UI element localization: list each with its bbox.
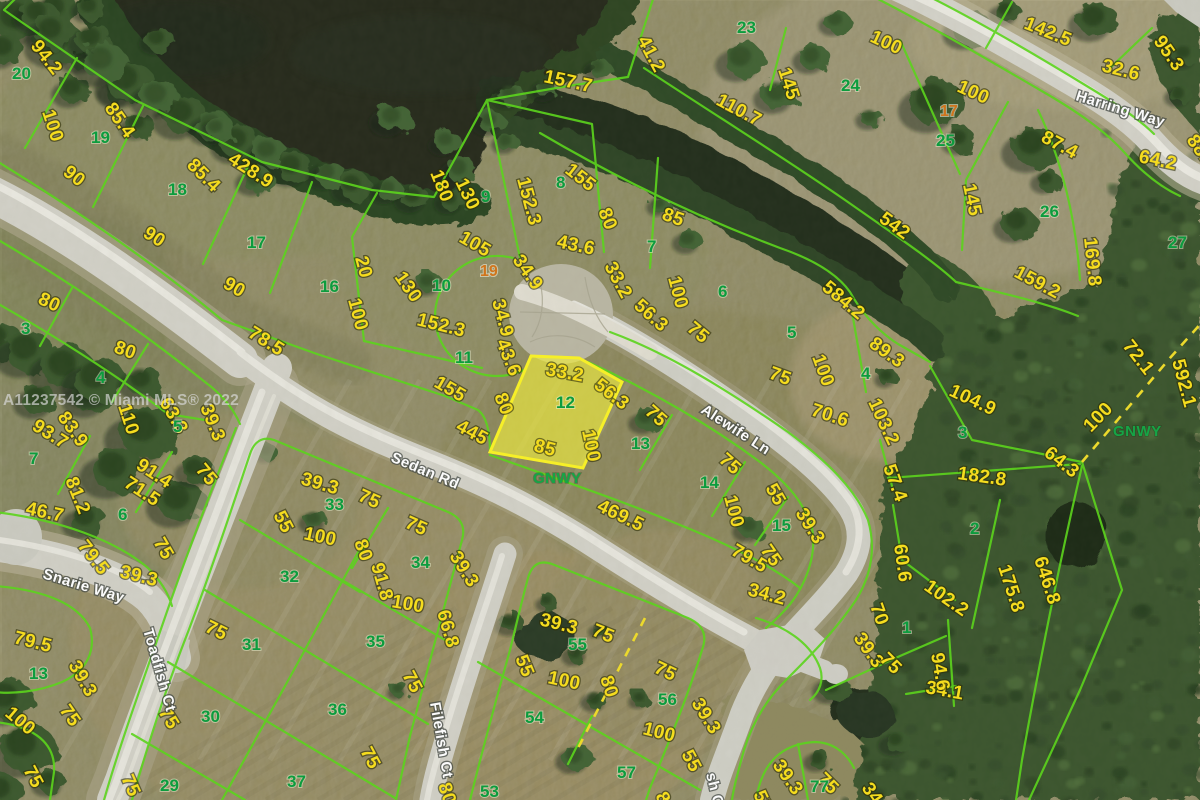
svg-text:34: 34 bbox=[411, 553, 430, 572]
svg-text:GNWY: GNWY bbox=[533, 470, 582, 487]
svg-text:11: 11 bbox=[455, 348, 473, 367]
svg-text:27: 27 bbox=[1168, 233, 1187, 252]
svg-text:23: 23 bbox=[737, 18, 756, 37]
svg-text:A11237542 © Miami MLS® 2022: A11237542 © Miami MLS® 2022 bbox=[3, 392, 239, 409]
svg-text:7: 7 bbox=[29, 449, 38, 468]
svg-text:4: 4 bbox=[861, 364, 871, 383]
svg-text:57: 57 bbox=[617, 763, 636, 782]
svg-text:13: 13 bbox=[631, 434, 650, 453]
svg-text:56: 56 bbox=[658, 690, 677, 709]
svg-text:3: 3 bbox=[958, 423, 967, 442]
svg-text:19: 19 bbox=[91, 128, 110, 147]
svg-text:25: 25 bbox=[936, 131, 955, 150]
svg-text:29: 29 bbox=[160, 776, 179, 795]
svg-text:20: 20 bbox=[12, 64, 31, 83]
svg-text:1: 1 bbox=[902, 618, 911, 637]
svg-text:8: 8 bbox=[556, 173, 565, 192]
svg-text:10: 10 bbox=[432, 276, 451, 295]
svg-text:32: 32 bbox=[280, 567, 299, 586]
svg-text:12: 12 bbox=[556, 393, 575, 412]
svg-text:30: 30 bbox=[201, 707, 220, 726]
svg-text:GNWY: GNWY bbox=[1113, 423, 1162, 440]
svg-text:2: 2 bbox=[970, 519, 979, 538]
svg-text:3: 3 bbox=[21, 319, 30, 338]
svg-text:5: 5 bbox=[173, 417, 182, 436]
svg-text:7: 7 bbox=[647, 237, 656, 256]
svg-text:55: 55 bbox=[568, 635, 587, 654]
svg-text:37: 37 bbox=[287, 772, 306, 791]
svg-text:4: 4 bbox=[96, 368, 106, 387]
svg-text:13: 13 bbox=[29, 664, 48, 683]
svg-text:17: 17 bbox=[247, 233, 266, 252]
svg-text:19: 19 bbox=[480, 263, 498, 280]
svg-text:15: 15 bbox=[772, 516, 791, 535]
svg-text:33: 33 bbox=[325, 495, 344, 514]
svg-text:35: 35 bbox=[366, 632, 385, 651]
svg-text:14: 14 bbox=[700, 473, 719, 492]
svg-text:26: 26 bbox=[1040, 202, 1059, 221]
svg-text:53: 53 bbox=[480, 782, 499, 800]
svg-text:9: 9 bbox=[481, 187, 490, 206]
svg-text:18: 18 bbox=[168, 180, 187, 199]
svg-text:6: 6 bbox=[118, 505, 127, 524]
svg-text:54: 54 bbox=[525, 708, 544, 727]
svg-text:36: 36 bbox=[328, 700, 347, 719]
svg-text:17: 17 bbox=[940, 103, 958, 120]
svg-text:24: 24 bbox=[841, 76, 860, 95]
svg-text:31: 31 bbox=[242, 635, 261, 654]
svg-text:5: 5 bbox=[787, 323, 796, 342]
svg-text:77: 77 bbox=[810, 777, 829, 796]
svg-text:16: 16 bbox=[320, 277, 339, 296]
svg-text:6: 6 bbox=[718, 282, 727, 301]
